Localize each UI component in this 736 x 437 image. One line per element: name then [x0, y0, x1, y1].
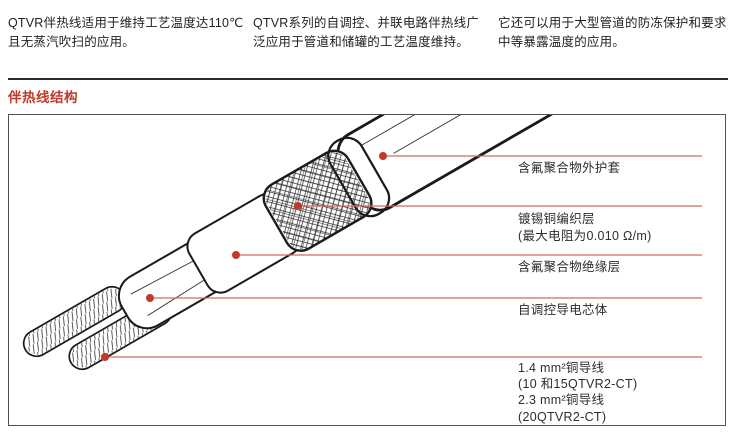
section-divider-line: [8, 78, 728, 80]
callout-text: (最大电阻为0.010 Ω/m): [518, 228, 652, 245]
cable-structure-figure: 含氟聚合物外护套 镀锡铜编织层 (最大电阻为0.010 Ω/m) 含氟聚合物绝缘…: [8, 114, 726, 426]
cable-illustration: [13, 115, 711, 401]
intro-paragraph-3: 它还可以用于大型管道的防冻保护和要求中等暴露温度的应用。: [498, 14, 730, 52]
callout-label-outer-jacket: 含氟聚合物外护套: [518, 160, 620, 177]
callout-label-bus-wires: 1.4 mm²铜导线 (10 和15QTVR2-CT) 2.3 mm²铜导线 (…: [518, 360, 637, 425]
callout-text: (10 和15QTVR2-CT): [518, 376, 637, 392]
callout-label-braid: 镀锡铜编织层 (最大电阻为0.010 Ω/m): [518, 211, 652, 244]
callout-label-core: 自调控导电芯体: [518, 302, 608, 319]
callout-dot-braid: [294, 202, 302, 210]
callout-label-insulation: 含氟聚合物绝缘层: [518, 259, 620, 276]
callout-text: 含氟聚合物绝缘层: [518, 259, 620, 276]
callout-dot-outer-jacket: [379, 152, 387, 160]
callout-dot-bus-wire: [101, 353, 109, 361]
callout-dot-core: [146, 294, 154, 302]
callout-text: 自调控导电芯体: [518, 302, 608, 319]
callout-text: 镀锡铜编织层: [518, 211, 652, 228]
intro-paragraph-1: QTVR伴热线适用于维持工艺温度达110℃且无蒸汽吹扫的应用。: [8, 14, 246, 52]
callout-text: 1.4 mm²铜导线: [518, 360, 637, 376]
intro-paragraph-2: QTVR系列的自调控、并联电路伴热线广泛应用于管道和储罐的工艺温度维持。: [253, 14, 489, 52]
callout-text: 2.3 mm²铜导线: [518, 392, 637, 408]
datasheet-page: QTVR伴热线适用于维持工艺温度达110℃且无蒸汽吹扫的应用。 QTVR系列的自…: [0, 0, 736, 437]
callout-text: (20QTVR2-CT): [518, 409, 637, 425]
callout-dot-insulation: [232, 251, 240, 259]
callout-text: 含氟聚合物外护套: [518, 160, 620, 177]
section-title: 伴热线结构: [8, 86, 78, 106]
